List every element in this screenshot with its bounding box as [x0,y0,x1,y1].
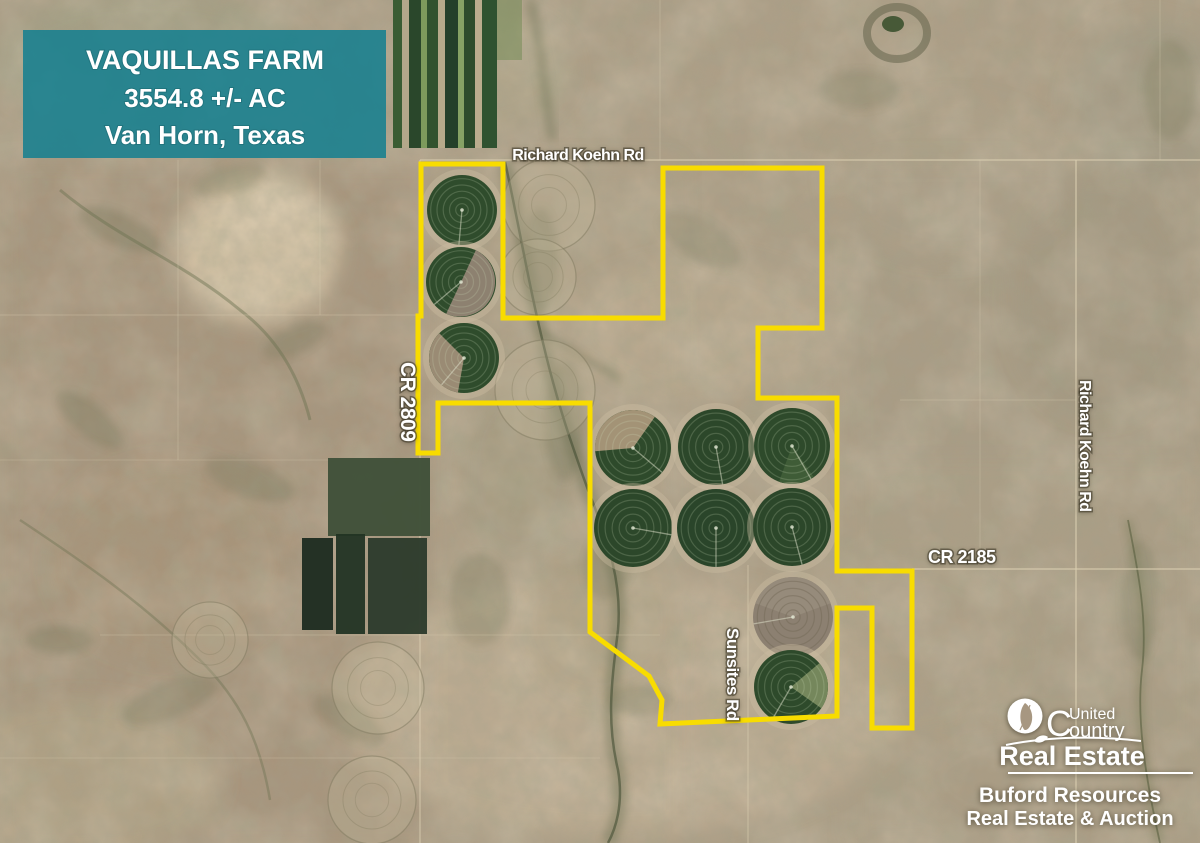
road-label-richard-koehn-top: Richard Koehn Rd [512,147,644,164]
crop-strip-field [464,0,475,148]
road-label-richard-koehn-right: Richard Koehn Rd [1076,380,1093,512]
logo-real-estate: Real Estate [999,741,1145,771]
satellite-map: Richard Koehn Rd CR 2809 Richard Koehn R… [0,0,1200,843]
irrigation-pivot-circle [421,169,503,251]
small-green-field [497,0,522,60]
crop-strip-field [427,0,438,148]
crop-strip-field [482,0,497,148]
faint-field-circle [495,340,595,440]
faint-field-circle [332,642,424,734]
dark-crop-field [368,538,427,634]
road-label-cr-2185: CR 2185 [928,547,996,567]
crop-strip-field [393,0,402,148]
farm-title: VAQUILLAS FARM [86,45,324,75]
dark-crop-field [328,458,430,536]
faint-field-circle [328,756,416,843]
crop-strip-field [421,0,427,148]
irrigation-pivot-circle [672,403,760,491]
crop-strip-field [475,0,482,148]
title-banner: VAQUILLAS FARM 3554.8 +/- AC Van Horn, T… [23,30,386,158]
irrigation-pivot-circle [747,482,837,572]
crop-strip-field [458,0,464,148]
crop-strip-field [402,0,409,148]
crop-strip-field [409,0,421,148]
irrigation-pivot-circle [588,483,678,573]
crop-strip-field [445,0,458,148]
crop-strip-field [438,0,445,148]
listing-map-image: Richard Koehn Rd CR 2809 Richard Koehn R… [0,0,1200,843]
faint-field-circle [172,602,248,678]
irrigation-pivot-circle [423,317,505,399]
faint-field-circle [503,159,595,251]
irrigation-pivot-circle [589,404,677,492]
farm-location: Van Horn, Texas [105,120,305,150]
dark-crop-field [336,534,365,634]
brokerage-name: Buford Resources [979,784,1161,807]
crop-strip-fields [393,0,497,148]
irrigation-pivot-circle [420,241,502,323]
faint-field-circle [500,239,576,315]
brokerage-tagline: Real Estate & Auction [966,808,1173,830]
farm-acreage: 3554.8 +/- AC [124,83,286,113]
irrigation-pivot-circle [748,402,836,490]
dark-crop-field [302,538,333,630]
road-label-sunsites: Sunsites Rd [723,628,742,721]
road-label-cr-2809: CR 2809 [396,362,419,441]
